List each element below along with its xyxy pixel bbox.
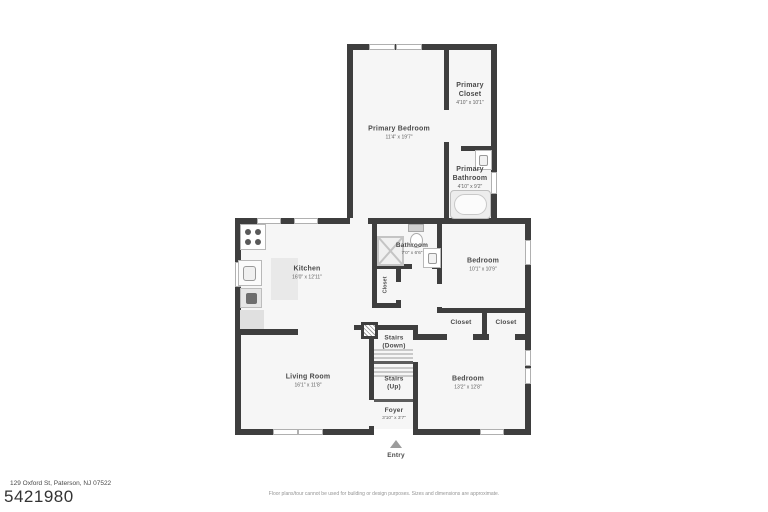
stair-tread	[374, 353, 413, 355]
wall	[374, 325, 414, 330]
room-dims: 3'10" x 3'7"	[372, 417, 416, 423]
room-dims: 13'2" x 12'8"	[428, 385, 508, 392]
entry-arrow-icon	[390, 440, 402, 448]
kitchen-sink-icon	[238, 260, 262, 286]
window	[273, 429, 298, 435]
room-label-stairs-down: Stairs (Down)	[374, 335, 414, 352]
room-dims: 16'1" x 11'8"	[266, 383, 350, 390]
room-dims: 11'4" x 19'7"	[353, 135, 445, 142]
room-name: Bedroom	[428, 375, 508, 384]
door-opening	[437, 284, 442, 307]
wall	[238, 329, 298, 335]
door-opening	[396, 282, 401, 300]
door-opening	[350, 218, 368, 224]
room-label-hall-closet: Closet	[382, 277, 389, 294]
stair-divider	[374, 399, 413, 402]
room-label-bathroom: Bathroom 7'0" x 6'6"	[382, 242, 442, 258]
window	[525, 368, 531, 384]
appliance-icon	[240, 288, 262, 308]
kitchen-counter	[240, 310, 264, 329]
door-opening	[489, 334, 515, 340]
wall	[491, 44, 497, 224]
room-dims: 7'0" x 6'6"	[382, 252, 442, 258]
toilet-icon	[408, 224, 424, 232]
room-name: Stairs	[374, 376, 414, 384]
room-label-closet-left: Closet	[441, 319, 481, 327]
stair-divider	[374, 361, 413, 364]
room-name: Primary Closet	[448, 81, 492, 99]
window	[298, 429, 323, 435]
door-opening	[449, 146, 461, 151]
entry-opening	[374, 429, 413, 435]
room-name: (Up)	[374, 384, 414, 392]
room-label-bedroom-upper: Bedroom 10'1" x 10'9"	[448, 257, 518, 274]
stair-tread	[374, 357, 413, 359]
door-opening	[447, 334, 473, 340]
stove-icon	[240, 224, 266, 250]
window	[294, 218, 318, 224]
room-name: Closet	[441, 319, 481, 327]
room-dims: 16'0" x 12'11"	[272, 275, 342, 282]
window	[396, 44, 422, 50]
room-name: Living Room	[266, 373, 350, 382]
bathtub-icon	[450, 190, 491, 219]
room-label-bedroom-lower: Bedroom 13'2" x 12'8"	[428, 375, 508, 392]
room-name: Closet	[486, 319, 526, 327]
room-name: Bedroom	[448, 257, 518, 266]
room-label-primary-bedroom: Primary Bedroom 11'4" x 19'7"	[353, 125, 445, 142]
window	[480, 429, 504, 435]
disclaimer-text: Floor plans/tour cannot be used for buil…	[0, 491, 768, 497]
room-label-closet-right: Closet	[486, 319, 526, 327]
room-label-primary-bathroom: Primary Bathroom 4'10" x 9'2"	[446, 165, 494, 191]
room-label-stairs-up: Stairs (Up)	[374, 376, 414, 393]
room-dims: 4'10" x 9'2"	[446, 184, 494, 191]
room-name: Bathroom	[382, 242, 442, 250]
window	[525, 350, 531, 366]
window	[525, 240, 531, 265]
entry-label: Entry	[376, 452, 416, 460]
room-name: Kitchen	[272, 265, 342, 274]
room-label-kitchen: Kitchen 16'0" x 12'11"	[272, 265, 342, 282]
stair-tread	[374, 367, 413, 369]
property-address: 129 Oxford St, Paterson, NJ 07522	[10, 480, 111, 487]
floorplan-canvas: Primary Bedroom 11'4" x 19'7" Primary Cl…	[0, 0, 768, 512]
room-name: (Down)	[374, 343, 414, 351]
room-label-primary-closet: Primary Closet 4'10" x 10'1"	[448, 81, 492, 107]
window	[369, 44, 395, 50]
entry-text: Entry	[376, 452, 416, 460]
room-name: Stairs	[374, 335, 414, 343]
room-label-living-room: Living Room 16'1" x 11'8"	[266, 373, 350, 390]
room-name: Primary Bedroom	[353, 125, 445, 134]
room-dims: 4'10" x 10'1"	[448, 100, 492, 107]
room-name: Primary Bathroom	[446, 165, 494, 183]
stair-tread	[374, 371, 413, 373]
room-name: Foyer	[372, 407, 416, 415]
room-dims: 10'1" x 10'9"	[448, 267, 518, 274]
listing-number: 5421980	[4, 487, 74, 507]
room-label-foyer: Foyer 3'10" x 3'7"	[372, 407, 416, 423]
